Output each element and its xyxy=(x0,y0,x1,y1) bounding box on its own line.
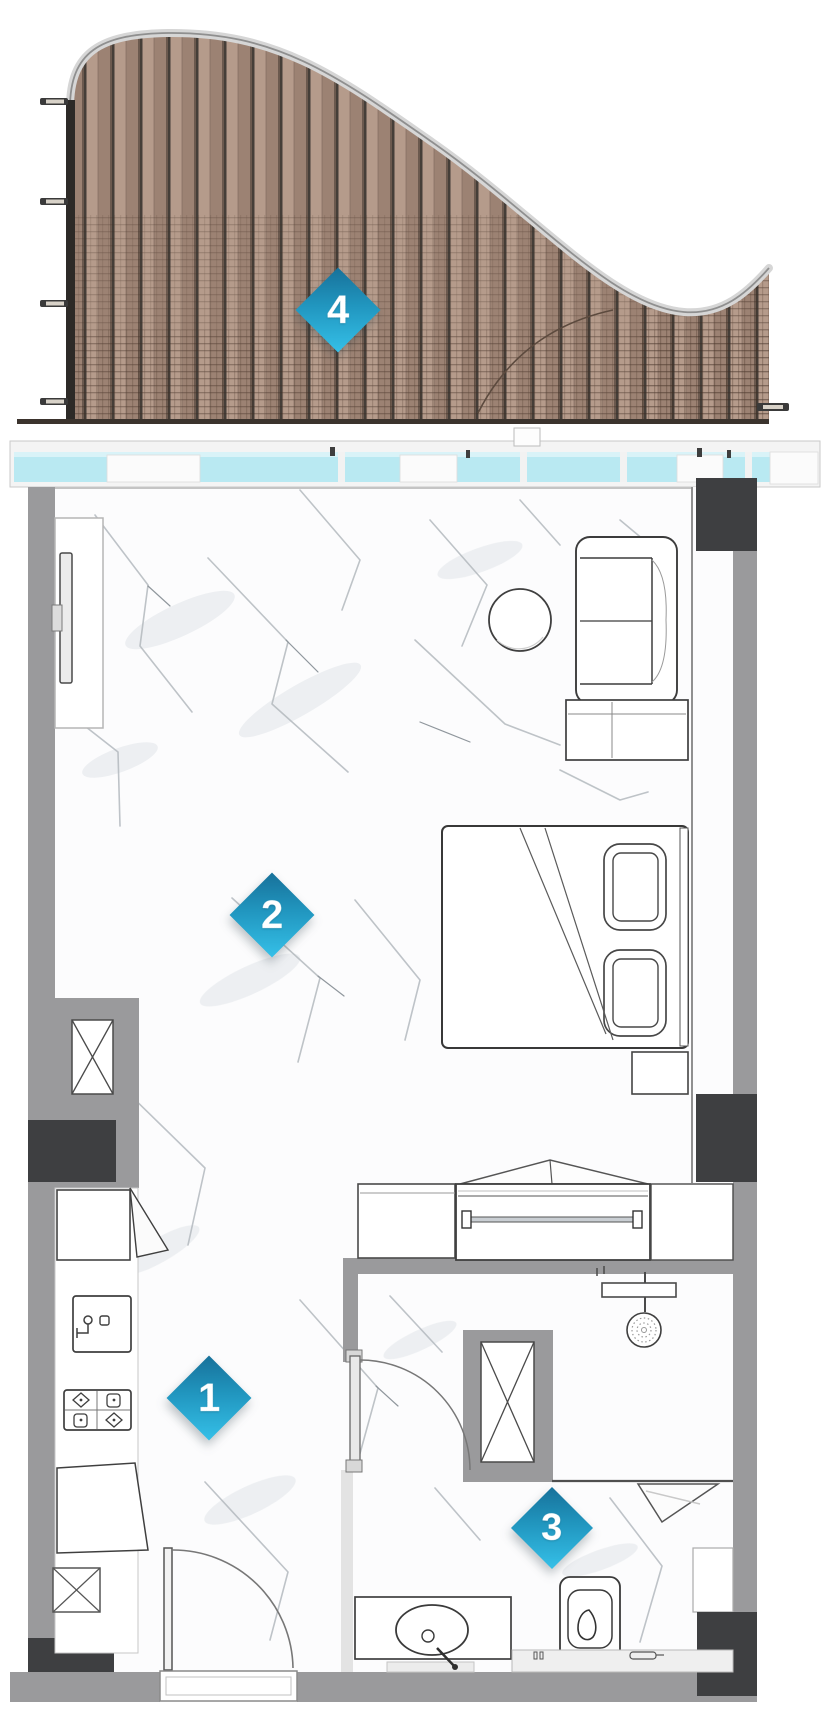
dark-wall-block-right-top xyxy=(696,478,757,551)
vent-shaft-left xyxy=(72,1020,113,1094)
bed-bench xyxy=(632,1052,688,1094)
dark-wall-block-left-1 xyxy=(28,1120,116,1182)
bathroom-door-leaf xyxy=(350,1356,360,1468)
bathroom-left-wall-stub xyxy=(343,1258,358,1362)
bottom-wall-right xyxy=(297,1672,757,1702)
balcony-deck xyxy=(17,33,789,425)
wall-niche-bottom-right xyxy=(693,1548,733,1612)
cabinet-right xyxy=(651,1184,733,1260)
cabinet-left xyxy=(358,1184,455,1258)
bed xyxy=(442,826,688,1048)
deck-step-box xyxy=(514,428,540,446)
hanging-rail xyxy=(466,1217,638,1222)
deck-bottom-edge xyxy=(17,419,769,424)
toilet xyxy=(560,1577,620,1660)
marker-label: 1 xyxy=(198,1378,220,1418)
marker-label: 4 xyxy=(327,290,349,330)
base-cabinet xyxy=(57,1463,148,1553)
vent-shaft-bathroom xyxy=(481,1342,534,1462)
marker-label: 3 xyxy=(541,1509,562,1547)
floor-plan: 4 2 1 3 xyxy=(0,0,832,1726)
deck-left-edge xyxy=(66,100,75,422)
vent-box-small xyxy=(53,1568,100,1612)
dark-wall-block-right-mid xyxy=(696,1094,757,1182)
door-leaf xyxy=(164,1548,172,1670)
pillow xyxy=(604,950,666,1036)
door-threshold xyxy=(160,1671,297,1701)
headboard xyxy=(680,828,688,1046)
side-table xyxy=(489,589,551,651)
bathroom-ledge xyxy=(512,1650,733,1672)
tv-panel xyxy=(52,518,103,728)
bathroom-divider-strip xyxy=(341,1470,353,1672)
left-wall xyxy=(28,487,55,1700)
cooktop xyxy=(64,1390,131,1430)
pillow xyxy=(604,844,666,930)
sofa xyxy=(576,537,677,704)
bottom-wall-left xyxy=(10,1672,160,1702)
sink-basin xyxy=(396,1605,468,1655)
shower-drain xyxy=(627,1313,661,1347)
marker-label: 2 xyxy=(261,895,283,935)
nightstand xyxy=(566,700,688,760)
kitchen-sink xyxy=(73,1296,131,1352)
